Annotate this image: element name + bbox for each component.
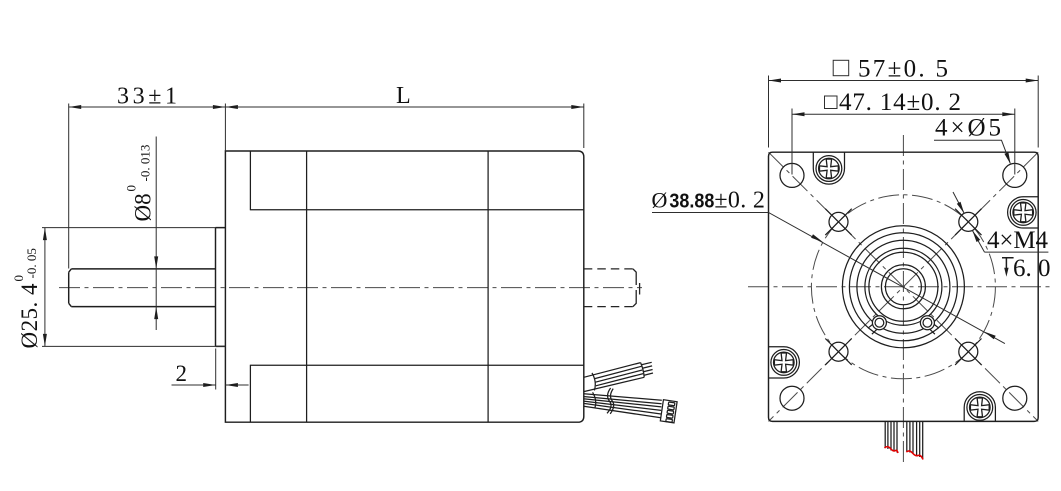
svg-text:4×Ø5: 4×Ø5 <box>935 115 1001 142</box>
svg-text:4×M4: 4×M4 <box>987 227 1049 254</box>
svg-text:L: L <box>396 83 411 109</box>
svg-text:6. 0: 6. 0 <box>1013 255 1051 282</box>
svg-text:Ø38.88±0. 2: Ø38.88±0. 2 <box>652 188 765 214</box>
svg-text:47. 14±0. 2: 47. 14±0. 2 <box>839 89 961 116</box>
svg-text:2: 2 <box>176 361 188 386</box>
svg-text:Ø25. 4: Ø25. 4 <box>17 283 42 349</box>
svg-text:0: 0 <box>124 185 139 192</box>
svg-text:-0. 05: -0. 05 <box>24 248 39 278</box>
svg-text:Ø8: Ø8 <box>131 193 156 221</box>
svg-text:-0. 013: -0. 013 <box>138 145 153 182</box>
